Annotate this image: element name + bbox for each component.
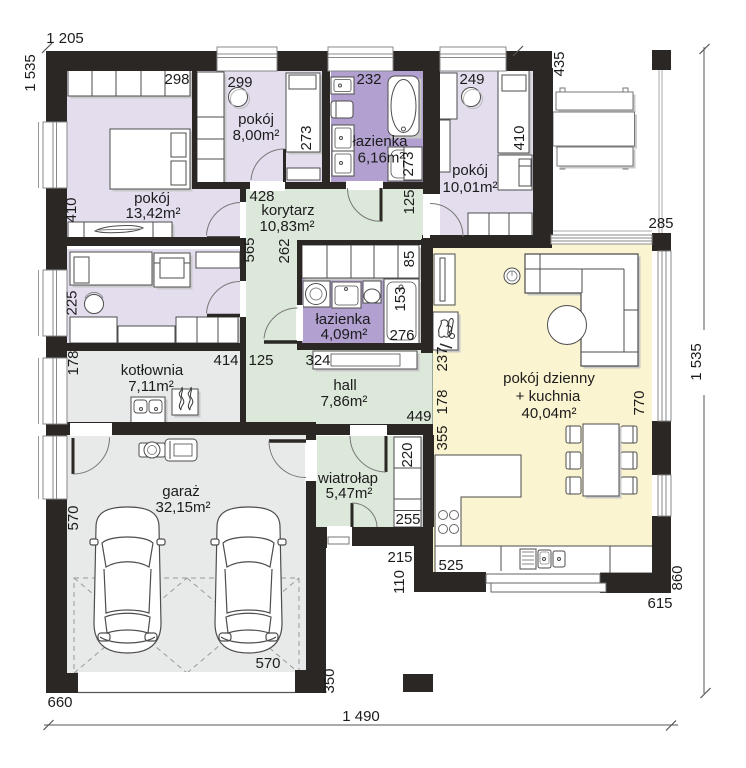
svg-text:414: 414 bbox=[213, 352, 238, 369]
svg-text:5,47m²: 5,47m² bbox=[326, 485, 373, 502]
svg-text:178: 178 bbox=[65, 350, 82, 375]
svg-text:249: 249 bbox=[459, 71, 484, 88]
svg-text:860: 860 bbox=[669, 565, 686, 590]
svg-text:korytarz: korytarz bbox=[261, 202, 314, 219]
svg-text:215: 215 bbox=[387, 549, 412, 566]
svg-text:7,86m²: 7,86m² bbox=[321, 393, 368, 410]
svg-text:350: 350 bbox=[321, 668, 338, 693]
svg-text:273: 273 bbox=[400, 151, 417, 176]
svg-text:10,01m²: 10,01m² bbox=[442, 179, 497, 196]
svg-text:łazienka: łazienka bbox=[352, 133, 408, 150]
svg-text:570: 570 bbox=[65, 505, 82, 530]
svg-text:255: 255 bbox=[395, 511, 420, 528]
svg-text:4,09m²: 4,09m² bbox=[321, 326, 368, 343]
svg-text:410: 410 bbox=[63, 197, 80, 222]
svg-text:232: 232 bbox=[356, 71, 381, 88]
svg-text:565: 565 bbox=[241, 237, 258, 262]
svg-text:pokój: pokój bbox=[452, 162, 488, 179]
svg-text:kotłownia: kotłownia bbox=[121, 362, 184, 379]
svg-text:299: 299 bbox=[227, 74, 252, 91]
svg-text:13,42m²: 13,42m² bbox=[125, 205, 180, 222]
svg-text:449: 449 bbox=[406, 408, 431, 425]
svg-text:1 205: 1 205 bbox=[46, 30, 84, 47]
svg-text:1 490: 1 490 bbox=[342, 708, 380, 725]
svg-text:273: 273 bbox=[298, 125, 315, 150]
svg-text:6,16m²: 6,16m² bbox=[358, 150, 405, 167]
svg-text:410: 410 bbox=[511, 125, 528, 150]
svg-text:220: 220 bbox=[399, 442, 416, 467]
svg-text:40,04m²: 40,04m² bbox=[521, 405, 576, 422]
svg-text:garaż: garaż bbox=[162, 483, 200, 500]
svg-text:1 535: 1 535 bbox=[688, 343, 705, 381]
svg-text:298: 298 bbox=[164, 71, 189, 88]
svg-text:285: 285 bbox=[648, 215, 673, 232]
svg-text:355: 355 bbox=[434, 425, 451, 450]
svg-text:125: 125 bbox=[401, 189, 418, 214]
svg-text:hall: hall bbox=[333, 377, 356, 394]
svg-text:770: 770 bbox=[631, 390, 648, 415]
svg-text:225: 225 bbox=[64, 290, 81, 315]
svg-text:660: 660 bbox=[47, 694, 72, 711]
svg-text:262: 262 bbox=[276, 238, 293, 263]
svg-text:570: 570 bbox=[255, 655, 280, 672]
svg-text:85: 85 bbox=[401, 251, 418, 268]
svg-text:+ kuchnia: + kuchnia bbox=[516, 388, 581, 405]
svg-text:pokój: pokój bbox=[238, 111, 274, 128]
svg-text:1 535: 1 535 bbox=[22, 54, 39, 92]
svg-text:178: 178 bbox=[434, 389, 451, 414]
svg-text:125: 125 bbox=[248, 352, 273, 369]
svg-text:pokój dzienny: pokój dzienny bbox=[503, 370, 595, 387]
svg-text:110: 110 bbox=[391, 570, 408, 594]
svg-text:153: 153 bbox=[392, 286, 409, 311]
svg-text:435: 435 bbox=[551, 51, 568, 76]
svg-text:10,83m²: 10,83m² bbox=[259, 218, 314, 235]
svg-text:276: 276 bbox=[389, 327, 414, 344]
svg-text:8,00m²: 8,00m² bbox=[233, 127, 280, 144]
svg-text:7,11m²: 7,11m² bbox=[128, 378, 174, 395]
svg-text:237: 237 bbox=[434, 346, 451, 371]
svg-text:615: 615 bbox=[647, 595, 672, 612]
svg-text:32,15m²: 32,15m² bbox=[155, 499, 210, 516]
svg-text:525: 525 bbox=[438, 557, 463, 574]
svg-text:324: 324 bbox=[305, 352, 330, 369]
